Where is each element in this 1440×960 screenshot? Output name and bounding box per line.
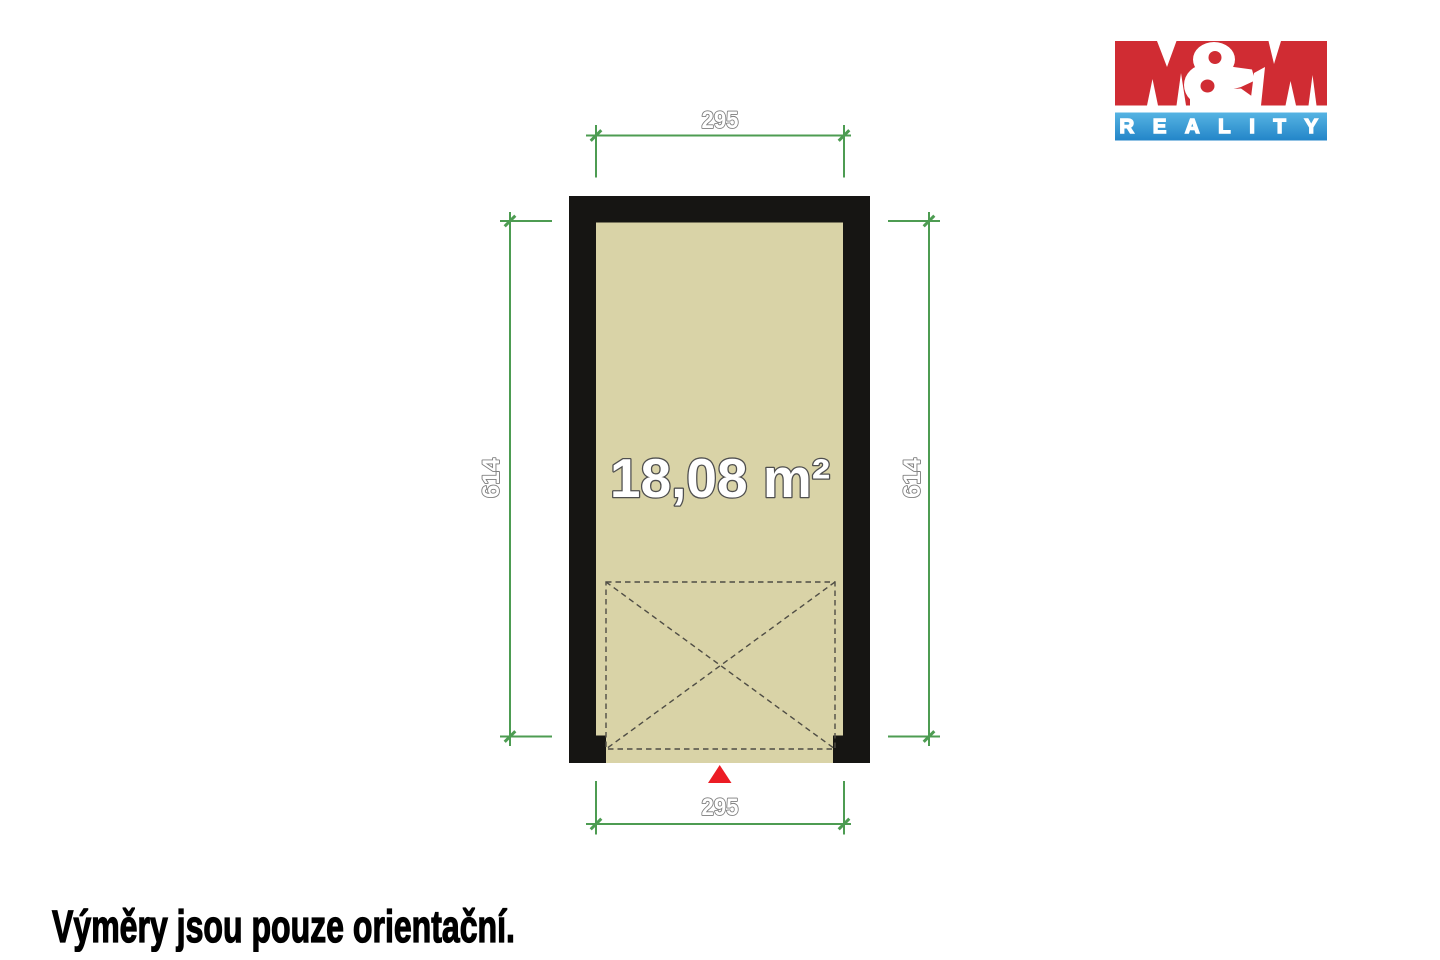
svg-text:295: 295 <box>702 107 739 134</box>
svg-text:REALITY: REALITY <box>1119 115 1328 138</box>
svg-text:18,08 m²: 18,08 m² <box>610 447 830 509</box>
svg-text:614: 614 <box>478 457 505 498</box>
svg-text:614: 614 <box>899 457 926 498</box>
svg-text:295: 295 <box>702 794 739 821</box>
